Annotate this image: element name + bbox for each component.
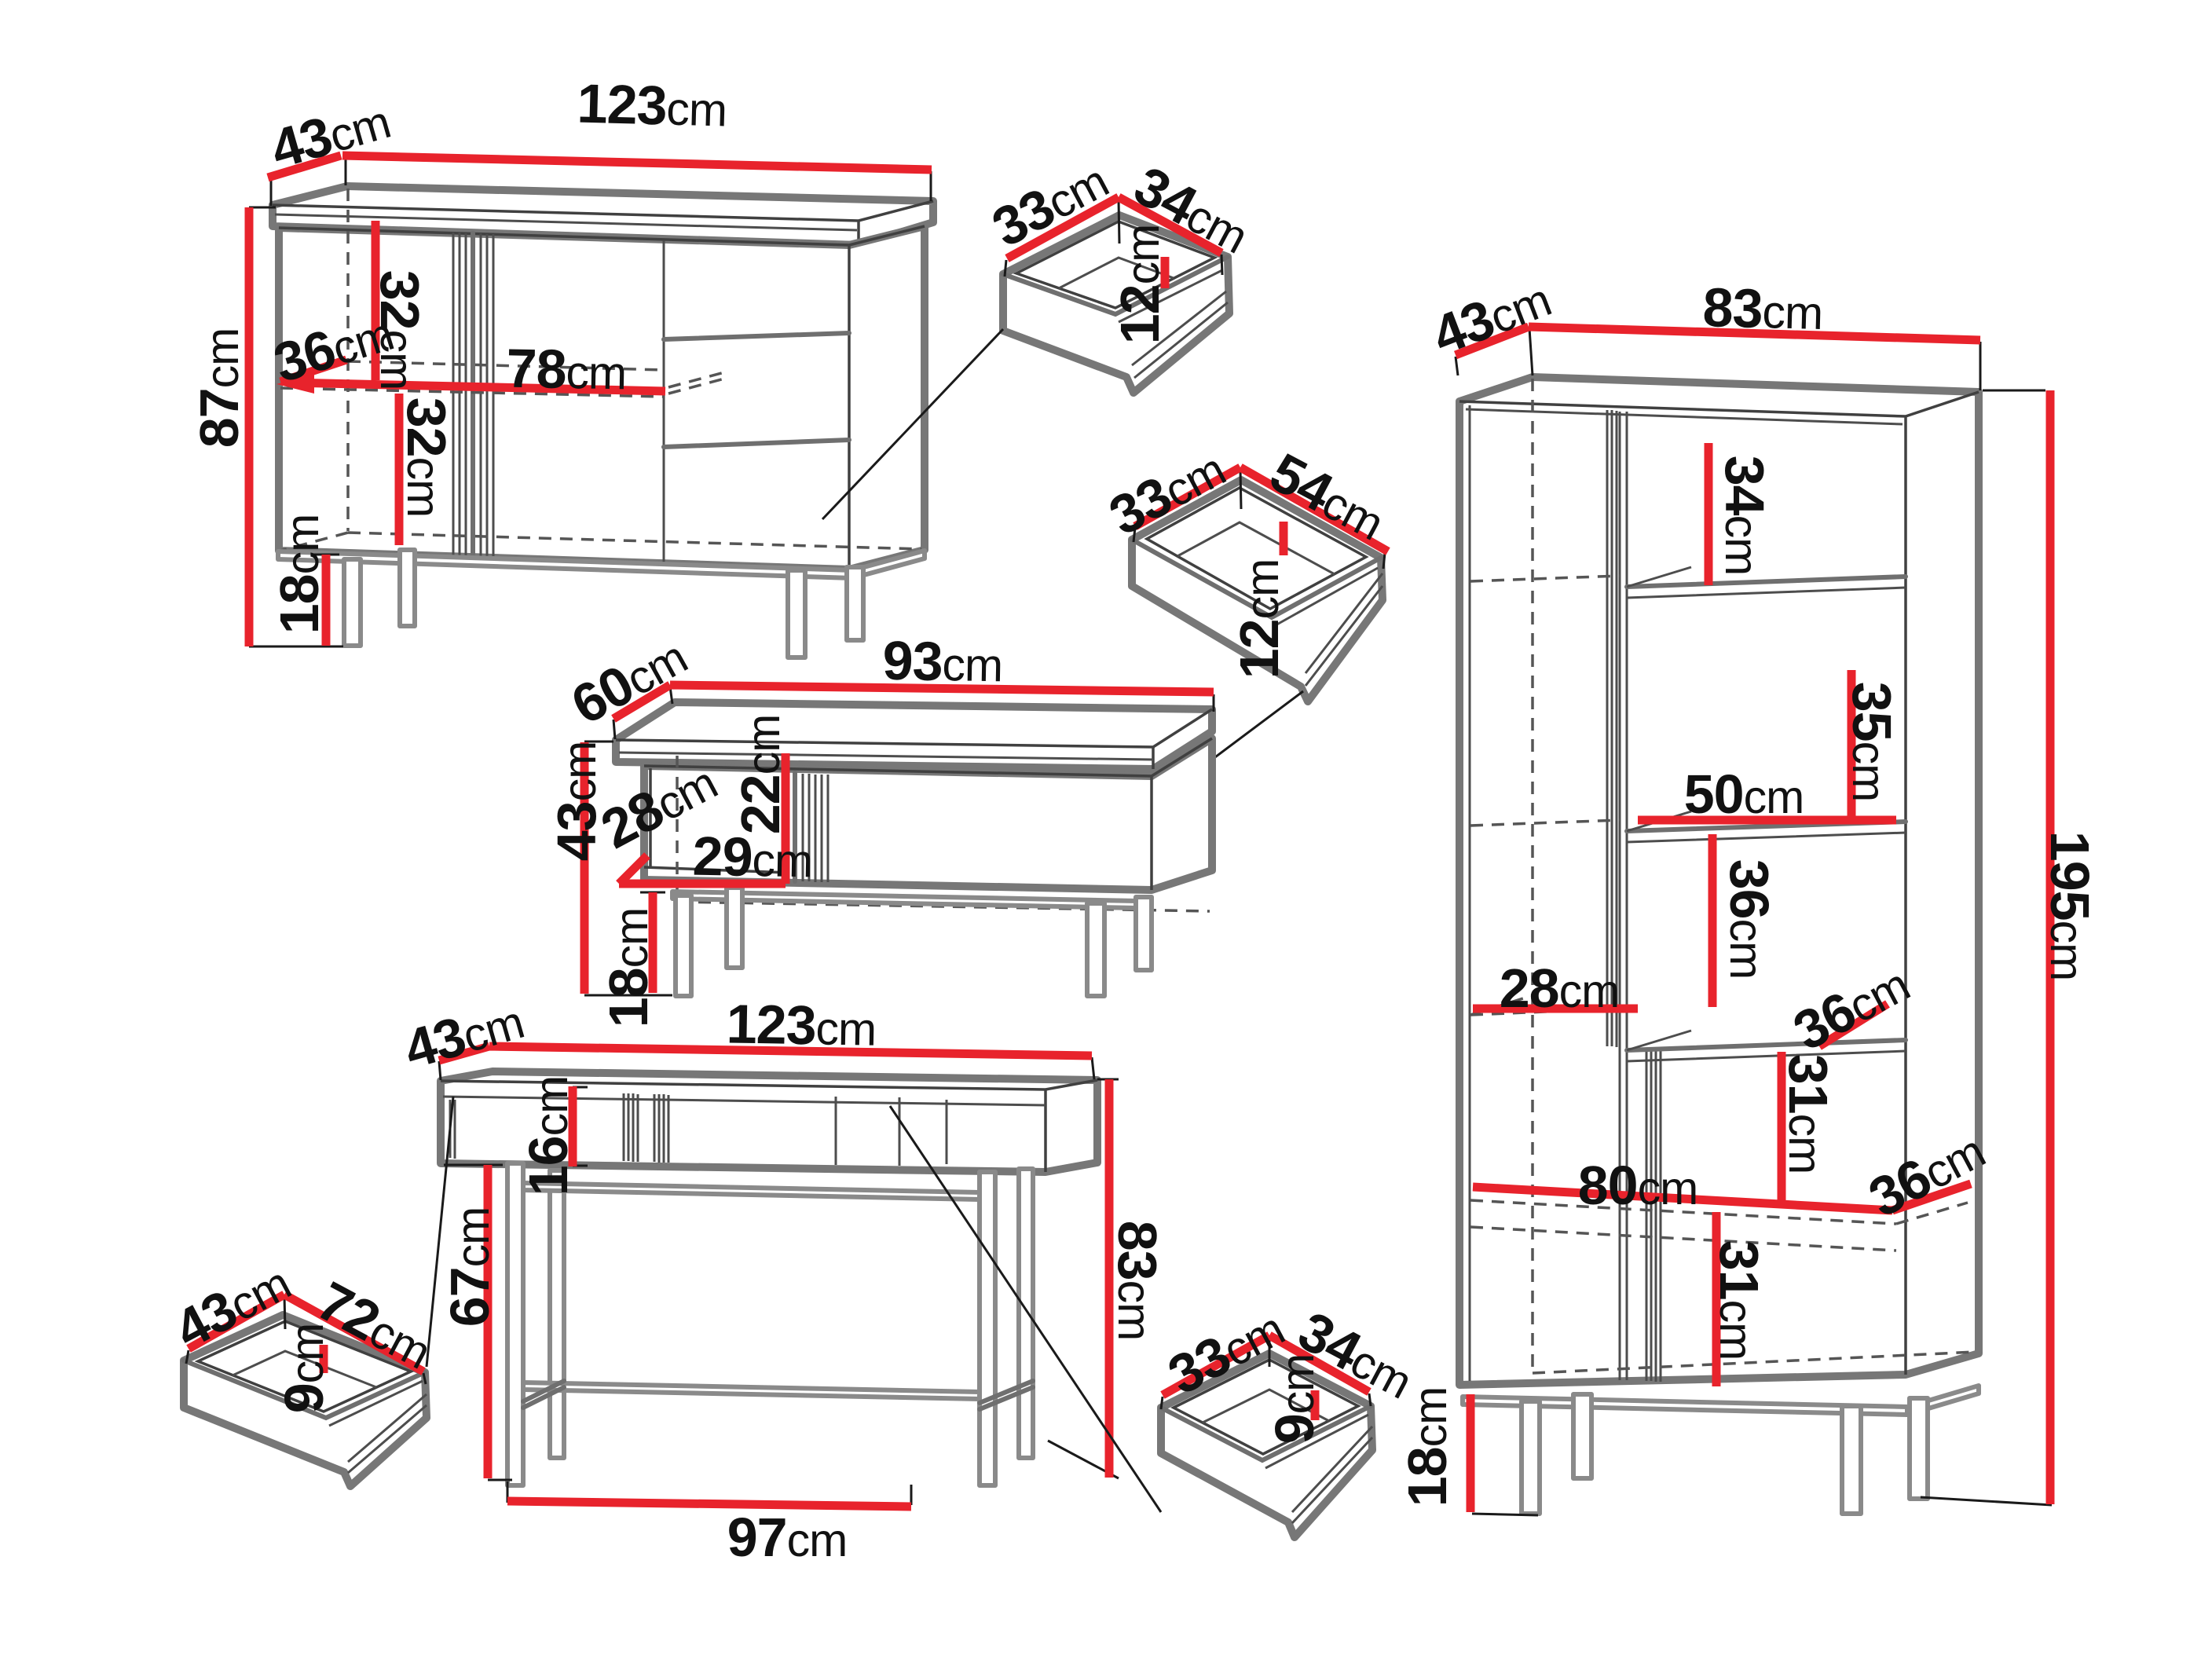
svg-text:12cm: 12cm	[1109, 225, 1170, 345]
svg-text:35cm: 35cm	[1841, 682, 1903, 802]
svg-text:22cm: 22cm	[730, 715, 791, 835]
svg-text:80cm: 80cm	[1578, 1155, 1698, 1216]
svg-text:18cm: 18cm	[1397, 1387, 1458, 1507]
svg-text:31cm: 31cm	[1778, 1054, 1839, 1174]
svg-text:93cm: 93cm	[882, 630, 1003, 694]
svg-text:16cm: 16cm	[518, 1076, 579, 1196]
svg-text:50cm: 50cm	[1684, 764, 1804, 825]
svg-text:67cm: 67cm	[439, 1207, 500, 1328]
svg-text:28cm: 28cm	[1500, 958, 1620, 1019]
svg-text:18cm: 18cm	[598, 908, 659, 1028]
svg-text:12cm: 12cm	[1229, 559, 1290, 679]
svg-text:34cm: 34cm	[1714, 456, 1775, 576]
svg-text:195cm: 195cm	[2039, 831, 2100, 980]
svg-text:32cm: 32cm	[396, 397, 457, 518]
svg-text:36cm: 36cm	[1719, 859, 1780, 980]
svg-text:31cm: 31cm	[1708, 1240, 1770, 1361]
svg-text:9cm: 9cm	[273, 1324, 335, 1414]
svg-text:123cm: 123cm	[726, 993, 877, 1057]
svg-text:43cm: 43cm	[546, 742, 607, 862]
svg-text:97cm: 97cm	[727, 1507, 848, 1568]
svg-text:87cm: 87cm	[189, 328, 250, 449]
svg-text:9cm: 9cm	[1264, 1354, 1325, 1445]
svg-text:83cm: 83cm	[1107, 1221, 1168, 1341]
svg-text:18cm: 18cm	[269, 515, 330, 635]
svg-text:78cm: 78cm	[506, 338, 627, 401]
